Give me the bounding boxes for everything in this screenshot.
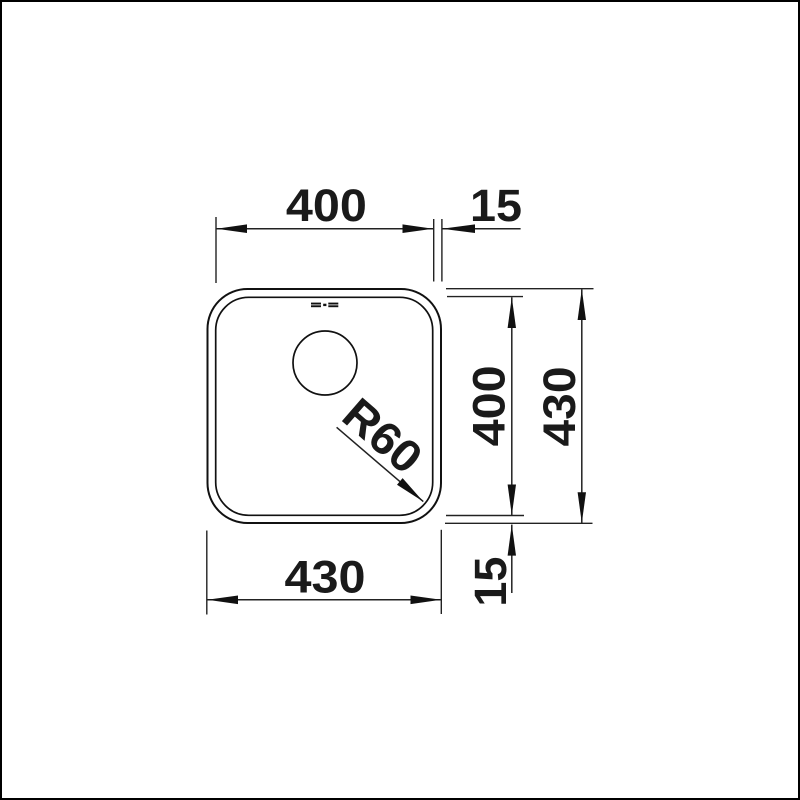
svg-text:15: 15 (465, 557, 516, 607)
svg-text:400: 400 (286, 180, 367, 231)
svg-text:400: 400 (463, 365, 514, 446)
svg-text:430: 430 (285, 551, 366, 602)
svg-text:430: 430 (534, 367, 585, 447)
svg-text:15: 15 (470, 180, 522, 231)
